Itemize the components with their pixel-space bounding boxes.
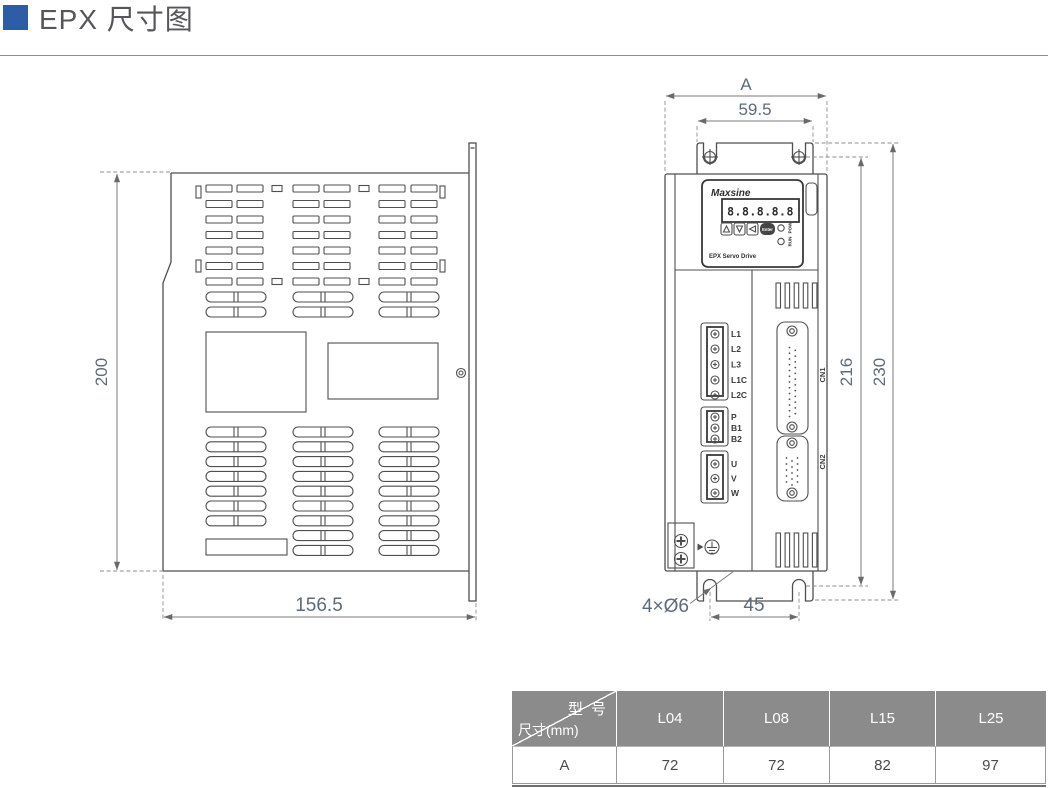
terminal-screw-icons (711, 330, 719, 497)
terminal-labels: L1 L2 L3 L1C L2C P B1 B2 U V W (731, 329, 747, 498)
ground-area (668, 523, 719, 568)
left-arrow-icon (750, 226, 756, 232)
side-mount-plate (469, 143, 476, 601)
cn1-label: CN1 (818, 367, 827, 382)
dim-label-200: 200 (92, 358, 111, 386)
down-arrow-icon (737, 226, 743, 232)
cn-connectors: CN1 CN2 (777, 322, 827, 501)
terminal-label-b1: B1 (731, 423, 742, 433)
dimension-59-5: 59.5 (697, 100, 813, 142)
table-header-row: 型 号 尺寸(mm) L04 L08 L15 L25 (512, 691, 1046, 746)
brand-logo: Maxsine (711, 188, 751, 199)
front-top-plate (697, 143, 813, 174)
value-cell-l08: 72 (724, 746, 830, 784)
corner-label-size: 尺寸(mm) (518, 720, 579, 740)
dimension-drawing: 200 156.5 Maxsine (0, 0, 1048, 680)
side-vent-slots (196, 185, 445, 285)
dim-label-156-5: 156.5 (295, 595, 343, 616)
panel-caption: EPX Servo Drive (709, 254, 757, 260)
row-label-cell: A (512, 746, 617, 784)
ground-symbol-lines (707, 542, 717, 554)
dimension-table: 型 号 尺寸(mm) L04 L08 L15 L25 A 72 72 82 97 (512, 691, 1046, 787)
value-cell-l25: 97 (936, 746, 1046, 784)
up-arrow-icon (724, 226, 730, 232)
terminal-label-l2c: L2C (731, 390, 747, 400)
cn-pin-dots (786, 347, 799, 486)
page: EPX 尺寸图 (0, 0, 1048, 788)
value-cell-l15: 82 (830, 746, 936, 784)
terminal-blocks: L1 L2 L3 L1C L2C P B1 B2 U V W (701, 323, 747, 503)
dim-label-216: 216 (837, 358, 856, 386)
column-header-l04: L04 (617, 691, 724, 746)
dimension-45: 45 (710, 592, 799, 621)
terminal-label-p: P (731, 412, 737, 422)
phillips-screw-icons (675, 535, 688, 566)
column-header-l08: L08 (724, 691, 830, 746)
terminal-label-b2: B2 (731, 434, 742, 444)
enter-button-label: Enter (762, 227, 773, 232)
dim-label-59-5: 59.5 (738, 100, 771, 119)
side-bottom-slot (206, 539, 287, 555)
operator-panel: Maxsine 8.8.8.8.8 Enter POW RUN (702, 180, 817, 267)
terminal-label-u: U (731, 459, 737, 469)
dim-label-4xd6: 4×Ø6 (642, 596, 689, 617)
table-corner-cell: 型 号 尺寸(mm) (512, 691, 617, 746)
corner-label-model: 型 号 (568, 698, 608, 719)
cn2-label: CN2 (818, 454, 827, 469)
side-window-left (206, 332, 306, 412)
column-header-l25: L25 (936, 691, 1046, 746)
pow-led-icon (778, 225, 784, 231)
column-header-l15: L15 (830, 691, 936, 746)
mount-hole-icons (702, 149, 807, 165)
side-view: 200 156.5 (92, 143, 476, 621)
terminal-label-l2: L2 (731, 344, 741, 354)
side-screw-center (459, 371, 463, 375)
pow-led-label: POW (788, 222, 793, 234)
dimension-230: 230 (815, 143, 900, 600)
dim-label-45: 45 (743, 595, 764, 616)
side-window-right (328, 343, 438, 399)
value-cell-l04: 72 (617, 746, 724, 784)
front-view: Maxsine 8.8.8.8.8 Enter POW RUN (642, 75, 900, 621)
dimension-A: A (665, 75, 827, 173)
terminal-label-l3: L3 (731, 360, 741, 370)
panel-side-slot (806, 183, 817, 215)
terminal-label-v: V (731, 474, 737, 484)
dimension-200: 200 (92, 172, 171, 571)
terminal-label-w: W (731, 488, 740, 498)
terminal-label-l1: L1 (731, 329, 741, 339)
dimension-holes: 4×Ø6 (642, 571, 734, 617)
run-led-icon (778, 238, 784, 244)
run-led-label: RUN (788, 237, 793, 247)
dim-label-230: 230 (870, 358, 889, 386)
ground-pointer-icon (698, 544, 704, 551)
dimension-216: 216 (806, 157, 868, 586)
table-data-row: A 72 72 82 97 (512, 746, 1046, 784)
side-left-edge (163, 173, 171, 571)
terminal-label-l1c: L1C (731, 375, 747, 385)
side-screw-icon (457, 369, 466, 378)
dimension-156-5: 156.5 (163, 575, 476, 621)
power-terminal-inner (707, 327, 723, 396)
cn1-connector (777, 322, 808, 434)
display-digits: 8.8.8.8.8 (727, 205, 794, 219)
dim-label-a: A (740, 75, 752, 94)
